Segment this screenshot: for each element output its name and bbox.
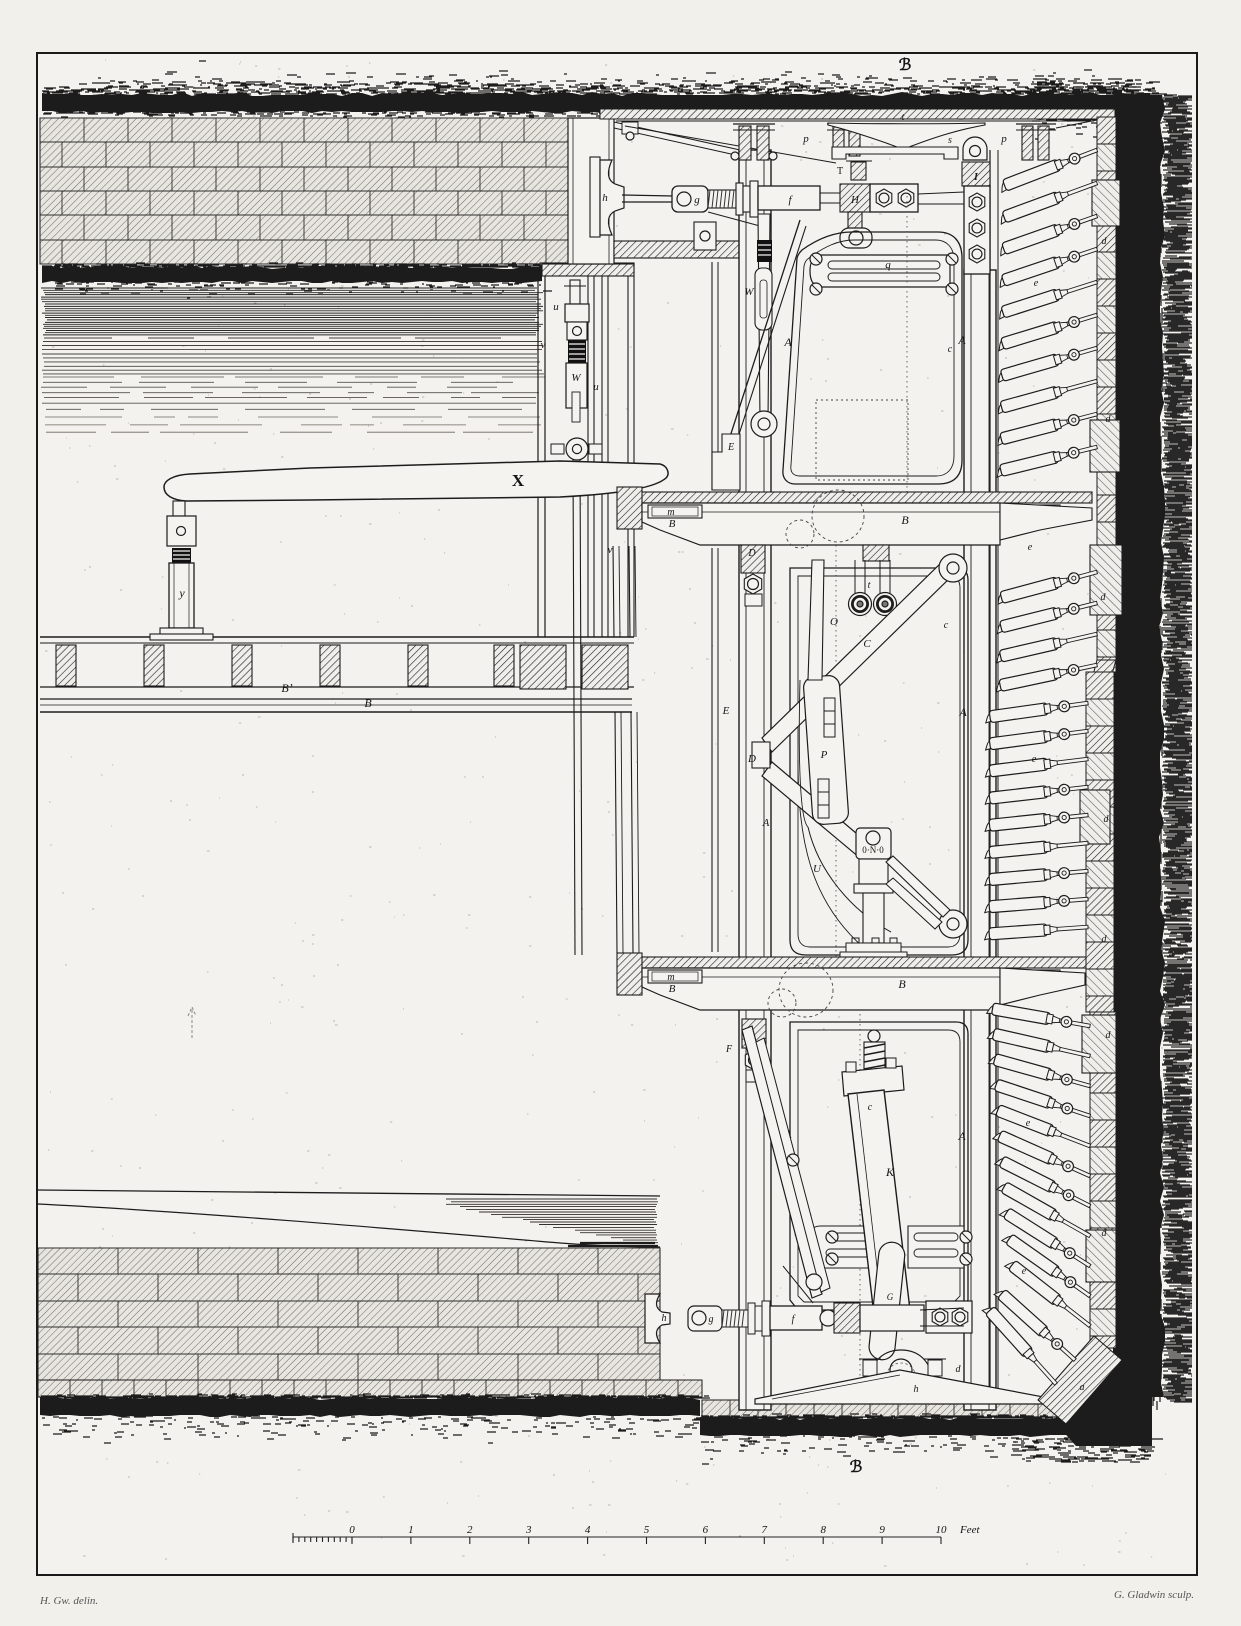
svg-text:q: q	[885, 259, 891, 271]
svg-text:E: E	[722, 705, 730, 717]
svg-text:B: B	[901, 513, 909, 527]
svg-text:g: g	[694, 194, 700, 206]
svg-text:A: A	[958, 705, 967, 719]
svg-text:W: W	[744, 286, 754, 298]
svg-text:t: t	[902, 112, 905, 123]
svg-text:O: O	[830, 616, 838, 628]
svg-text:B: B	[669, 983, 676, 995]
svg-text:a: a	[1080, 1382, 1085, 1393]
svg-text:G. Gladwin sculp.: G. Gladwin sculp.	[1114, 1589, 1194, 1601]
svg-text:A: A	[762, 817, 770, 829]
svg-text:m: m	[667, 972, 674, 983]
svg-text:C: C	[863, 638, 871, 650]
svg-text:B: B	[669, 518, 676, 530]
svg-text:U: U	[813, 863, 822, 875]
svg-text:p: p	[1000, 133, 1007, 145]
svg-text:2: 2	[467, 1524, 473, 1536]
svg-text:G: G	[887, 1292, 894, 1302]
svg-text:g: g	[709, 1314, 714, 1325]
svg-text:c: c	[944, 620, 949, 631]
svg-text:4: 4	[585, 1524, 591, 1536]
svg-text:e: e	[1028, 542, 1033, 553]
svg-text:8: 8	[820, 1524, 826, 1536]
svg-text:y: y	[178, 586, 185, 600]
svg-text:A: A	[957, 333, 966, 347]
svg-text:h: h	[914, 1384, 919, 1395]
svg-text:ℬ: ℬ	[899, 57, 912, 74]
svg-text:P: P	[820, 749, 828, 761]
svg-text:3: 3	[525, 1524, 532, 1536]
svg-text:Feet: Feet	[959, 1524, 980, 1536]
svg-text:c: c	[868, 1102, 873, 1113]
svg-text:v: v	[541, 339, 546, 351]
svg-text:H: H	[850, 194, 860, 206]
svg-text:X: X	[512, 471, 525, 490]
svg-text:T: T	[837, 166, 843, 177]
svg-text:A: A	[957, 1129, 966, 1143]
svg-text:e: e	[1034, 278, 1039, 289]
svg-text:h: h	[662, 1313, 667, 1324]
svg-text:Bʼ: Bʼ	[281, 681, 292, 695]
svg-text:s: s	[948, 135, 952, 146]
svg-text:e: e	[1022, 1266, 1027, 1277]
svg-text:D: D	[747, 753, 756, 765]
svg-text:9: 9	[879, 1524, 885, 1536]
svg-text:7: 7	[762, 1524, 768, 1536]
svg-text:10: 10	[936, 1524, 948, 1536]
svg-text:ℬ: ℬ	[850, 1459, 863, 1476]
svg-text:1: 1	[408, 1524, 414, 1536]
svg-text:c: c	[948, 344, 953, 355]
svg-text:D: D	[747, 548, 756, 559]
svg-text:u: u	[553, 301, 559, 313]
svg-text:u: u	[593, 381, 599, 393]
svg-text:e: e	[1026, 1118, 1031, 1129]
svg-text:m: m	[667, 507, 674, 518]
svg-text:B: B	[898, 977, 906, 991]
svg-text:p: p	[802, 133, 809, 145]
svg-text:W: W	[571, 372, 581, 384]
svg-text:t: t	[868, 580, 871, 591]
svg-text:K: K	[885, 1165, 895, 1179]
svg-text:6: 6	[703, 1524, 709, 1536]
svg-text:E: E	[727, 442, 734, 453]
svg-text:0: 0	[349, 1524, 355, 1536]
svg-text:0·N·0: 0·N·0	[862, 845, 884, 855]
svg-text:B: B	[364, 696, 372, 710]
svg-text:v: v	[608, 544, 613, 556]
svg-text:h: h	[602, 192, 608, 204]
svg-text:F: F	[725, 1044, 733, 1055]
svg-text:H. Gw. delin.: H. Gw. delin.	[39, 1595, 98, 1607]
svg-text:5: 5	[644, 1524, 650, 1536]
svg-text:A: A	[783, 335, 792, 349]
svg-text:e: e	[1032, 754, 1037, 765]
